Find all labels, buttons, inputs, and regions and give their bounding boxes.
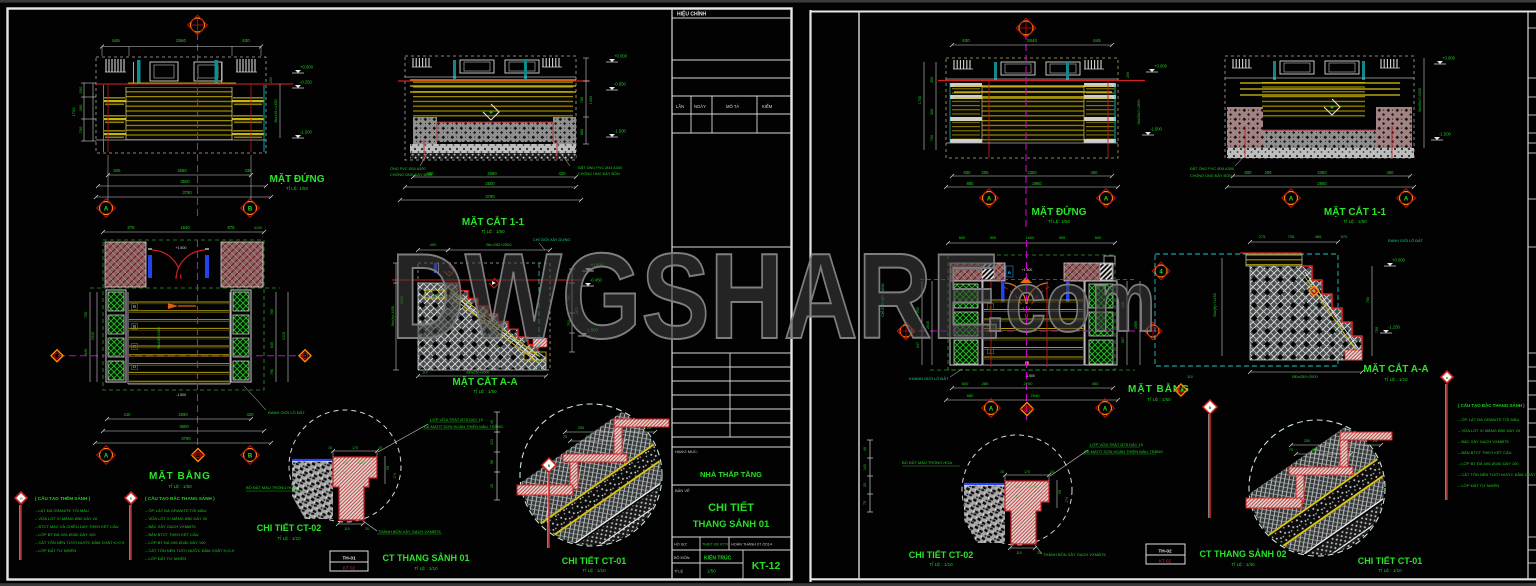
svg-text:25: 25: [1299, 487, 1303, 491]
svg-text:25: 25: [647, 426, 651, 430]
svg-text:3500: 3500: [179, 424, 189, 429]
svg-text:110: 110: [422, 371, 428, 375]
svg-text:Sbx(h)=7x250: Sbx(h)=7x250: [1213, 293, 1217, 317]
svg-text:3790: 3790: [181, 436, 191, 441]
svg-text:645: 645: [270, 342, 274, 348]
svg-text:KT 02: KT 02: [1159, 559, 1171, 564]
svg-text:BĐx250+2000: BĐx250+2000: [467, 371, 490, 375]
svg-text:KT 02: KT 02: [343, 566, 355, 571]
svg-text:( CẤU TẠO THỀM SẢNH ): ( CẤU TẠO THỀM SẢNH ): [35, 495, 91, 501]
svg-text:ỐNG PVC Ø34 A300: ỐNG PVC Ø34 A300: [390, 166, 425, 171]
svg-text:+0.000: +0.000: [1392, 258, 1406, 263]
svg-text:110: 110: [1187, 375, 1193, 379]
svg-text:HỒ SƠ:: HỒ SƠ:: [674, 542, 688, 547]
svg-text:TỈ LỆ: 1/50: TỈ LỆ: 1/50: [286, 184, 309, 191]
svg-text:141: 141: [490, 439, 494, 445]
svg-text:15: 15: [490, 484, 494, 488]
svg-text:880: 880: [967, 181, 975, 186]
svg-text:15: 15: [1000, 470, 1004, 474]
svg-text:2560: 2560: [176, 38, 187, 43]
svg-text:– CÁT TÔN NỀN TƯỚI NƯỚC ĐẦM CH: – CÁT TÔN NỀN TƯỚI NƯỚC ĐẦM CHẶT K=0.9: [1458, 472, 1536, 477]
svg-text:-1.500: -1.500: [1439, 132, 1452, 137]
svg-text:– BẬC XÂY GẠCH VXMØ75: – BẬC XÂY GẠCH VXMØ75: [1458, 439, 1509, 444]
svg-text:25: 25: [1373, 439, 1377, 443]
svg-text:600: 600: [1095, 236, 1101, 240]
svg-text:2350: 2350: [1027, 170, 1037, 175]
svg-text:420: 420: [559, 171, 567, 176]
svg-text:A: A: [1103, 406, 1108, 412]
svg-text:-1.500: -1.500: [1025, 374, 1035, 378]
svg-text:75: 75: [1307, 487, 1311, 491]
svg-text:A: A: [989, 406, 994, 412]
svg-text:A: A: [1104, 196, 1109, 202]
svg-text:– VỮA LÓT XI MĂNG Ø50 DÀY 20: – VỮA LÓT XI MĂNG Ø50 DÀY 20: [145, 516, 208, 521]
svg-text:RANH GIỚI LÔ ĐẤT: RANH GIỚI LÔ ĐẤT: [268, 410, 305, 415]
svg-text:9bx50x7=1500: 9bx50x7=1500: [1137, 99, 1141, 124]
svg-text:MẶT ĐỨNG: MẶT ĐỨNG: [270, 172, 325, 185]
svg-text:– LỚP BT ĐÁ 4X6 Ø150 DÀY 100: – LỚP BT ĐÁ 4X6 Ø150 DÀY 100: [35, 532, 96, 537]
svg-text:TH-02: TH-02: [1158, 549, 1172, 555]
svg-text:– LÁT ĐÁ GRANITE TỐI MÀU: – LÁT ĐÁ GRANITE TỐI MÀU: [35, 508, 89, 513]
svg-text:25: 25: [573, 474, 577, 478]
svg-text:+0.000: +0.000: [300, 65, 314, 70]
svg-text:TỈ LỆ : 1/10: TỈ LỆ : 1/10: [1384, 375, 1408, 382]
svg-text:TỈ LỆ : 1/10: TỈ LỆ : 1/10: [929, 560, 953, 567]
svg-text:TỈ LỆ : 1/10: TỈ LỆ : 1/10: [1378, 566, 1402, 573]
svg-text:ĐẶT ỐNG PVC Ø34 A300: ĐẶT ỐNG PVC Ø34 A300: [1190, 166, 1234, 171]
svg-text:KIỂM: KIỂM: [762, 104, 773, 109]
svg-text:2590: 2590: [178, 412, 188, 417]
svg-text:-0.850: -0.850: [614, 82, 627, 87]
svg-text:A: A: [1289, 196, 1294, 202]
svg-text:3790: 3790: [485, 194, 495, 199]
svg-text:BỒ ĐẤT MÀU TRỒNG HOA: BỒ ĐẤT MÀU TRỒNG HOA: [246, 485, 296, 490]
svg-text:HIỆU CHỈNH: HIỆU CHỈNH: [677, 10, 707, 18]
svg-text:DWGSHARE: DWGSHARE: [391, 228, 1000, 364]
svg-text:700: 700: [84, 312, 88, 318]
svg-text:9bx167=1500: 9bx167=1500: [157, 327, 161, 349]
svg-text:A: A: [104, 453, 109, 459]
svg-text:760: 760: [270, 309, 274, 315]
svg-text:700: 700: [1366, 297, 1370, 303]
svg-text:CHI TIẾT CT-02: CHI TIẾT CT-02: [909, 550, 974, 560]
svg-text:( CẤU TẠO BẬC THANG SẢNH ): ( CẤU TẠO BẬC THANG SẢNH ): [145, 495, 215, 501]
svg-text:A: A: [1404, 196, 1409, 202]
svg-text:MẶT CẮT A-A: MẶT CẮT A-A: [1363, 362, 1428, 375]
svg-text:98: 98: [490, 460, 494, 464]
svg-text:1450: 1450: [589, 96, 593, 104]
svg-text:75: 75: [863, 501, 867, 505]
svg-text:TỈ LỆ : 1/50: TỈ LỆ : 1/50: [473, 387, 497, 394]
svg-text:300: 300: [78, 104, 83, 111]
svg-text:-0.250: -0.250: [300, 80, 313, 85]
svg-text:2350: 2350: [1317, 170, 1327, 175]
svg-text:2945: 2945: [91, 332, 95, 340]
svg-text:101: 101: [1015, 485, 1021, 489]
svg-text:350: 350: [930, 77, 934, 83]
svg-text:KIẾN TRÚC: KIẾN TRÚC: [704, 555, 732, 562]
svg-text:280: 280: [982, 381, 989, 386]
svg-text:250: 250: [1312, 448, 1318, 452]
svg-text:790: 790: [270, 369, 274, 375]
svg-text:BẢN VẼ: BẢN VẼ: [675, 488, 690, 493]
svg-text:50: 50: [343, 471, 347, 475]
svg-text:BĐx250+2000: BĐx250+2000: [1292, 374, 1318, 379]
svg-text:LỚP VỮA TRÁT Ø75 DÀY 15: LỚP VỮA TRÁT Ø75 DÀY 15: [1090, 442, 1144, 447]
svg-text:2560: 2560: [177, 168, 187, 173]
svg-text:2950: 2950: [1317, 181, 1327, 186]
svg-text:+0.000: +0.000: [614, 54, 628, 59]
svg-text:+1.500: +1.500: [176, 246, 187, 250]
svg-text:CHI TIẾT CT-02: CHI TIẾT CT-02: [257, 523, 322, 533]
svg-text:875: 875: [228, 225, 236, 230]
svg-text:275: 275: [1259, 234, 1266, 239]
svg-text:250: 250: [1304, 439, 1310, 443]
svg-text:101: 101: [343, 461, 349, 465]
svg-text:880: 880: [967, 393, 974, 398]
svg-text:CHỐNG ÚNG ĐÁY BỒN: CHỐNG ÚNG ĐÁY BỒN: [390, 172, 432, 177]
svg-text:NGÀY: NGÀY: [694, 104, 706, 109]
svg-text:CT THANG SẢNH 02: CT THANG SẢNH 02: [1199, 548, 1286, 559]
svg-text:THÀNH BỒN XÂY GẠCH VXMØ75: THÀNH BỒN XÂY GẠCH VXMØ75: [378, 529, 441, 534]
svg-text:174: 174: [393, 473, 397, 479]
svg-text:15: 15: [328, 446, 332, 450]
svg-text:TỈ LỆ : 1/50: TỈ LỆ : 1/50: [1147, 395, 1171, 402]
svg-text:1640: 1640: [180, 225, 190, 230]
svg-text:CHỐNG ÚNG ĐÁY BỒN: CHỐNG ÚNG ĐÁY BỒN: [1190, 173, 1232, 178]
svg-text:CHI TIẾT CT-01: CHI TIẾT CT-01: [1358, 556, 1423, 566]
svg-text:50: 50: [1015, 495, 1019, 499]
svg-text:-1.500: -1.500: [614, 129, 627, 134]
svg-text:+0.000: +0.000: [1442, 56, 1456, 61]
svg-text:3790: 3790: [182, 190, 192, 195]
svg-text:750: 750: [1375, 327, 1379, 333]
svg-text:75: 75: [1289, 448, 1293, 452]
svg-text:25: 25: [365, 527, 369, 531]
svg-text:2940: 2940: [1031, 393, 1041, 398]
svg-text:-1.500: -1.500: [176, 393, 186, 397]
svg-text:15: 15: [19, 497, 23, 501]
svg-text:450: 450: [1091, 170, 1099, 175]
svg-text:TH-01: TH-01: [342, 556, 356, 562]
svg-text:765: 765: [580, 97, 584, 103]
svg-text:98: 98: [386, 466, 390, 470]
svg-text:RANH GIỚI LÔ ĐẤT: RANH GIỚI LÔ ĐẤT: [1388, 238, 1424, 243]
svg-text:TỈ LỆ: 1/50: TỈ LỆ: 1/50: [1048, 217, 1071, 224]
svg-text:( CẤU TẠO BẬC THANG SẢNH ): ( CẤU TẠO BẬC THANG SẢNH ): [1458, 403, 1525, 408]
svg-text:MÔ TẢ: MÔ TẢ: [726, 104, 739, 109]
svg-text:2950: 2950: [1032, 181, 1042, 186]
svg-text:4100: 4100: [254, 226, 262, 230]
svg-text:CHI TIẾT: CHI TIẾT: [708, 501, 754, 514]
svg-text:205: 205: [982, 170, 990, 175]
svg-text:685: 685: [580, 129, 584, 135]
svg-text:600: 600: [962, 381, 969, 386]
svg-text:450: 450: [1092, 381, 1099, 386]
svg-text:TỈ LỆ : 1/50: TỈ LỆ : 1/50: [168, 482, 192, 489]
svg-text:CHI TIẾT CT-01: CHI TIẾT CT-01: [562, 556, 627, 566]
svg-text:– LỚP BT ĐÁ 4X6 Ø150 DÀY 100: – LỚP BT ĐÁ 4X6 Ø150 DÀY 100: [145, 540, 206, 545]
svg-text:HẠNG MỤC:: HẠNG MỤC:: [675, 449, 698, 454]
svg-text:LỚP VỮA TRÁT Ø75 DÀY 15: LỚP VỮA TRÁT Ø75 DÀY 15: [430, 417, 484, 422]
svg-text:HOÀN THÀNH 07 /2014: HOÀN THÀNH 07 /2014: [731, 543, 772, 547]
svg-text:1/50: 1/50: [707, 569, 716, 574]
svg-text:– VỮA LÓT XI MĂNG Ø50 DÀY 20: – VỮA LÓT XI MĂNG Ø50 DÀY 20: [1458, 428, 1521, 433]
svg-text:170: 170: [1024, 470, 1030, 474]
svg-text:– LỚP ĐẤT TỰ NHIÊN: – LỚP ĐẤT TỰ NHIÊN: [145, 556, 186, 561]
svg-text:465: 465: [1315, 234, 1322, 239]
svg-text:40: 40: [863, 447, 867, 451]
svg-text:40: 40: [490, 420, 494, 424]
svg-text:30 30: 30 30: [1029, 485, 1037, 489]
svg-text:110: 110: [1016, 551, 1022, 555]
svg-text:TỈ LỆ : 1/10: TỈ LỆ : 1/10: [414, 564, 438, 571]
svg-text:KHANH GIỚI LÔ ĐẤT: KHANH GIỚI LÔ ĐẤT: [909, 376, 949, 381]
svg-text:MẶT CẮT A-A: MẶT CẮT A-A: [452, 375, 517, 388]
svg-text:700: 700: [78, 126, 83, 133]
svg-text:MẶT BẰNG: MẶT BẰNG: [149, 469, 211, 482]
svg-text:75: 75: [581, 474, 585, 478]
svg-text:ĐÁ MATIT SƠN HOÀN THIỆN MÀU TR: ĐÁ MATIT SƠN HOÀN THIỆN MÀU TRẮNG: [1084, 449, 1163, 454]
svg-text:– ỐP, LÁT ĐÁ GRANITE TỐI MÀU: – ỐP, LÁT ĐÁ GRANITE TỐI MÀU: [1458, 417, 1519, 422]
svg-text:MẶT ĐỨNG: MẶT ĐỨNG: [1032, 205, 1087, 218]
svg-text:TỈ LỆ: TỈ LỆ: [674, 569, 684, 574]
svg-text:30 30: 30 30: [357, 461, 365, 465]
svg-text:LẦN: LẦN: [676, 104, 684, 109]
svg-text:– BẢN BTCT THEO KẾT CẤU: – BẢN BTCT THEO KẾT CẤU: [145, 532, 199, 537]
svg-text:75: 75: [563, 435, 567, 439]
svg-text:MẶT CẮT 1-1: MẶT CẮT 1-1: [462, 215, 525, 228]
svg-text:110: 110: [344, 527, 350, 531]
svg-text:505: 505: [1059, 236, 1065, 240]
svg-text:1700: 1700: [71, 107, 76, 117]
svg-text:2500: 2500: [485, 181, 495, 186]
svg-text:1700: 1700: [918, 96, 922, 104]
svg-text:645: 645: [84, 349, 88, 355]
svg-text:735: 735: [1288, 234, 1295, 239]
svg-text:THÀNH BỒN XÂY GẠCH VXMØ75: THÀNH BỒN XÂY GẠCH VXMØ75: [1043, 552, 1106, 557]
svg-text:200: 200: [1126, 72, 1130, 78]
svg-text:B: B: [248, 206, 253, 212]
svg-text:700: 700: [930, 135, 934, 141]
svg-text:15: 15: [378, 446, 382, 450]
svg-text:– ỐP, LÁT ĐÁ GRANITE TỐI MÀU: – ỐP, LÁT ĐÁ GRANITE TỐI MÀU: [145, 508, 206, 513]
svg-text:2640: 2640: [1027, 38, 1038, 43]
svg-text:-1.250: -1.250: [1388, 325, 1401, 330]
svg-text:– BẬC XÂY GẠCH VXMØ75: – BẬC XÂY GẠCH VXMØ75: [145, 524, 196, 529]
svg-text:15: 15: [863, 483, 867, 487]
svg-text:170: 170: [352, 446, 358, 450]
svg-text:645: 645: [112, 38, 120, 43]
svg-text:9bx161=1450: 9bx161=1450: [274, 99, 278, 122]
svg-text:645: 645: [1093, 38, 1101, 43]
svg-text:CHỐNG ÚNG ĐÁY BỒN: CHỐNG ÚNG ĐÁY BỒN: [578, 171, 620, 176]
svg-text:– BẢN BTCT THEO KẾT CẤU: – BẢN BTCT THEO KẾT CẤU: [1458, 450, 1512, 455]
svg-text:630: 630: [962, 38, 970, 43]
svg-text:.com: .com: [985, 253, 1156, 349]
svg-text:500: 500: [78, 86, 83, 93]
svg-text:9bx50x7=1500: 9bx50x7=1500: [1418, 88, 1422, 112]
svg-text:505: 505: [114, 168, 122, 173]
svg-text:141: 141: [863, 464, 867, 470]
svg-text:200: 200: [269, 77, 273, 83]
svg-text:THIẾT KẾ KTTC: THIẾT KẾ KTTC: [702, 542, 730, 547]
svg-text:– BTCT MÁC VÀ CHIỀU DÀY THEO K: – BTCT MÁC VÀ CHIỀU DÀY THEO KẾT CẤU: [35, 524, 119, 529]
svg-text:3500: 3500: [180, 179, 190, 184]
svg-text:CT THANG SẢNH 01: CT THANG SẢNH 01: [382, 552, 469, 563]
svg-text:875: 875: [128, 225, 136, 230]
svg-text:– CÁT TÔN NỀN TƯỚI NƯỚC ĐẦM CH: – CÁT TÔN NỀN TƯỚI NƯỚC ĐẦM CHẶT K=0.9: [35, 540, 125, 545]
svg-text:– LỚP ĐẤT TỰ NHIÊN: – LỚP ĐẤT TỰ NHIÊN: [1458, 483, 1499, 488]
svg-text:– VỮA LÓT XI MĂNG Ø50 DÀY 20: – VỮA LÓT XI MĂNG Ø50 DÀY 20: [35, 516, 98, 521]
svg-text:TỈ LỆ : 1/50: TỈ LỆ : 1/50: [1343, 217, 1367, 224]
svg-text:600: 600: [1245, 170, 1253, 175]
svg-text:98: 98: [1058, 490, 1062, 494]
svg-text:-1.500: -1.500: [300, 130, 313, 135]
svg-text:TỈ LỆ : 1/10: TỈ LỆ : 1/10: [277, 534, 301, 541]
svg-text:– LỚP ĐẤT TỰ NHIÊN: – LỚP ĐẤT TỰ NHIÊN: [35, 548, 76, 553]
svg-text:1600: 1600: [1026, 236, 1034, 240]
svg-text:2115: 2115: [282, 332, 286, 340]
svg-text:-1.500: -1.500: [1150, 127, 1163, 132]
svg-text:ĐẶT ỐNG PVC Ø34 A300: ĐẶT ỐNG PVC Ø34 A300: [578, 165, 622, 170]
svg-text:250: 250: [578, 426, 584, 430]
svg-text:+0.000: +0.000: [1154, 64, 1168, 69]
svg-text:B: B: [248, 453, 253, 459]
svg-text:450: 450: [1387, 170, 1395, 175]
svg-text:TỈ LỆ : 1/10: TỈ LỆ : 1/10: [582, 566, 606, 573]
svg-text:THANG SẢNH 01: THANG SẢNH 01: [693, 518, 770, 530]
svg-text:– LỚP BT ĐÁ 4X6 Ø150 DÀY 100: – LỚP BT ĐÁ 4X6 Ø150 DÀY 100: [1458, 461, 1519, 466]
svg-text:600: 600: [964, 170, 972, 175]
svg-text:BỘ MÔN:: BỘ MÔN:: [674, 555, 690, 560]
svg-text:250: 250: [586, 435, 592, 439]
svg-text:2750: 2750: [1024, 381, 1034, 386]
svg-text:NHÀ THẤP TẦNG: NHÀ THẤP TẦNG: [700, 469, 762, 479]
svg-text:A: A: [987, 196, 992, 202]
svg-text:MẶT CẮT 1-1: MẶT CẮT 1-1: [1324, 205, 1387, 218]
svg-text:174: 174: [1065, 497, 1069, 503]
svg-text:TỈ LỆ : 1/40: TỈ LỆ : 1/40: [1231, 560, 1255, 567]
svg-text:300: 300: [930, 109, 934, 115]
svg-text:BỒ ĐẤT MÀU TRỒNG HOA: BỒ ĐẤT MÀU TRỒNG HOA: [902, 460, 952, 465]
svg-text:KT-12: KT-12: [752, 560, 781, 572]
svg-text:A: A: [104, 206, 109, 212]
svg-text:420: 420: [247, 412, 255, 417]
svg-text:– CÁT TÔN NỀN TƯỚI NƯỚC ĐẦM CH: – CÁT TÔN NỀN TƯỚI NƯỚC ĐẦM CHẶT K=0.9: [145, 548, 235, 553]
svg-text:570: 570: [1341, 234, 1348, 239]
svg-text:2590: 2590: [487, 171, 497, 176]
svg-text:410: 410: [124, 412, 132, 417]
svg-text:630: 630: [242, 38, 250, 43]
svg-text:200: 200: [1265, 170, 1273, 175]
